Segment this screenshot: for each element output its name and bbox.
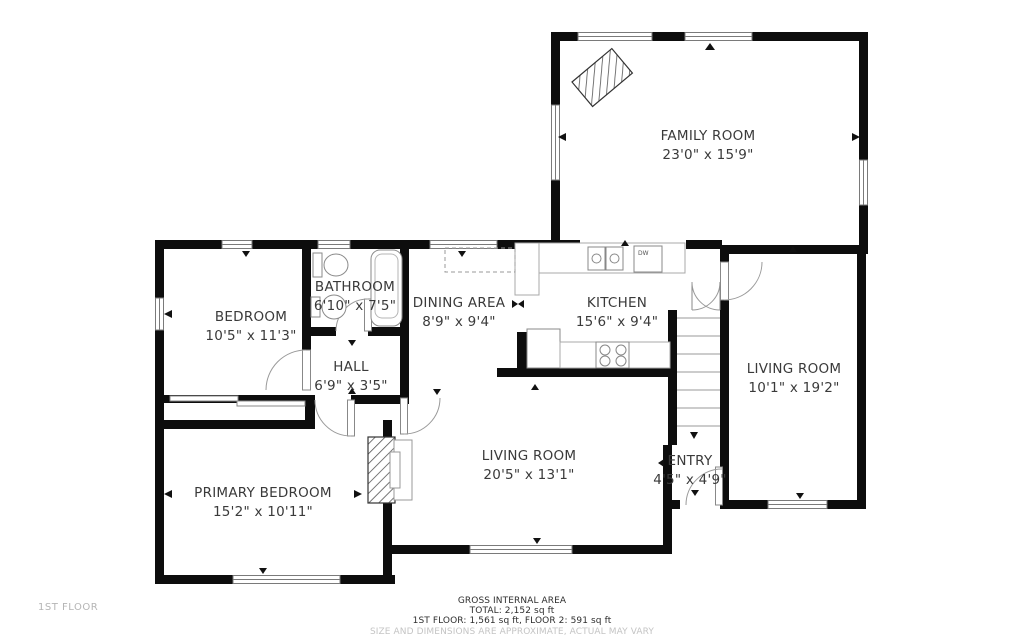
room-name: KITCHEN bbox=[576, 294, 658, 313]
room-name: PRIMARY BEDROOM bbox=[194, 484, 332, 503]
room-dims: 23'0" x 15'9" bbox=[661, 146, 756, 165]
room-name: ENTRY bbox=[653, 452, 727, 471]
kitchen-sink-fixture bbox=[588, 247, 623, 270]
room-label-living-room-right: LIVING ROOM 10'1" x 19'2" bbox=[747, 360, 842, 398]
room-label-primary-bedroom: PRIMARY BEDROOM 15'2" x 10'11" bbox=[194, 484, 332, 522]
dishwasher-label: DW bbox=[638, 250, 649, 257]
dishwasher-fixture: DW bbox=[634, 246, 662, 272]
room-dims: 4'5" x 4'9" bbox=[653, 471, 727, 490]
room-dims: 20'5" x 13'1" bbox=[482, 466, 577, 485]
room-dims: 10'1" x 19'2" bbox=[747, 379, 842, 398]
family-room-fireplace bbox=[572, 49, 632, 107]
room-label-family-room: FAMILY ROOM 23'0" x 15'9" bbox=[661, 127, 756, 165]
stairs-direction-arrow bbox=[690, 432, 698, 439]
room-label-bathroom: BATHROOM 6'10" x 7'5" bbox=[314, 278, 396, 316]
footer-area-summary: GROSS INTERNAL AREA TOTAL: 2,152 sq ft 1… bbox=[0, 596, 1024, 637]
gross-internal-area-label: GROSS INTERNAL AREA bbox=[0, 596, 1024, 606]
staircase bbox=[677, 318, 720, 439]
room-name: BEDROOM bbox=[205, 308, 296, 327]
room-label-hall: HALL 6'9" x 3'5" bbox=[314, 358, 388, 396]
total-area-value: TOTAL: 2,152 sq ft bbox=[0, 606, 1024, 616]
room-label-dining-area: DINING AREA 8'9" x 9'4" bbox=[413, 294, 505, 332]
room-label-kitchen: KITCHEN 15'6" x 9'4" bbox=[576, 294, 658, 332]
room-name: LIVING ROOM bbox=[482, 447, 577, 466]
room-name: FAMILY ROOM bbox=[661, 127, 756, 146]
room-dims: 6'9" x 3'5" bbox=[314, 377, 388, 396]
primary-bedroom-fireplace bbox=[368, 437, 412, 503]
room-dims: 15'6" x 9'4" bbox=[576, 313, 658, 332]
room-dims: 15'2" x 10'11" bbox=[194, 503, 332, 522]
floorplan-page: DW bbox=[0, 0, 1024, 639]
room-label-entry: ENTRY 4'5" x 4'9" bbox=[653, 452, 727, 490]
stove-fixture bbox=[596, 342, 629, 368]
room-dims: 10'5" x 11'3" bbox=[205, 327, 296, 346]
room-label-living-room-center: LIVING ROOM 20'5" x 13'1" bbox=[482, 447, 577, 485]
floorplan-drawing: DW bbox=[0, 0, 1024, 639]
room-dims: 8'9" x 9'4" bbox=[413, 313, 505, 332]
refrigerator-fixture bbox=[527, 329, 560, 368]
pass-through-counter bbox=[445, 248, 515, 272]
room-name: BATHROOM bbox=[314, 278, 396, 297]
room-name: HALL bbox=[314, 358, 388, 377]
floor-name-label: 1ST FLOOR bbox=[38, 602, 98, 613]
disclaimer-text: SIZE AND DIMENSIONS ARE APPROXIMATE, ACT… bbox=[0, 627, 1024, 637]
room-name: LIVING ROOM bbox=[747, 360, 842, 379]
room-dims: 6'10" x 7'5" bbox=[314, 297, 396, 316]
toilet-fixture bbox=[313, 253, 348, 277]
floor-areas-value: 1ST FLOOR: 1,561 sq ft, FLOOR 2: 591 sq … bbox=[0, 616, 1024, 626]
room-label-bedroom: BEDROOM 10'5" x 11'3" bbox=[205, 308, 296, 346]
room-name: DINING AREA bbox=[413, 294, 505, 313]
